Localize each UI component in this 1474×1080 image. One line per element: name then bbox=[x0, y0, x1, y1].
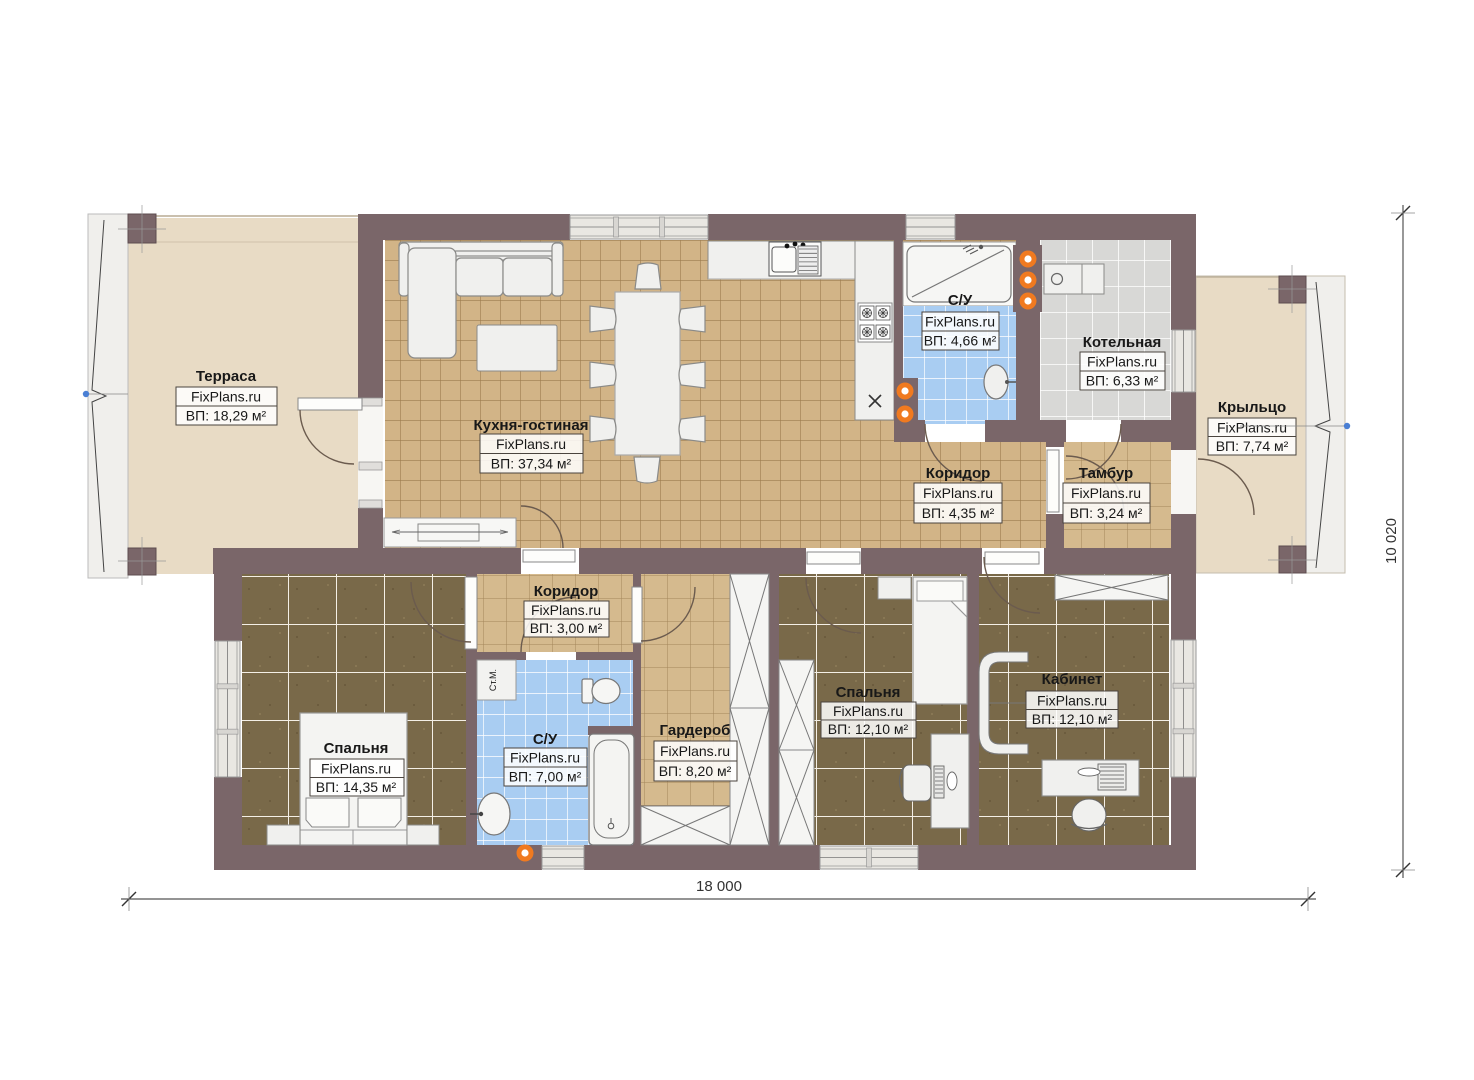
svg-text:ВП: 37,34 м²: ВП: 37,34 м² bbox=[491, 455, 572, 471]
svg-text:ВП: 14,35 м²: ВП: 14,35 м² bbox=[316, 779, 397, 795]
svg-text:Спальня: Спальня bbox=[324, 740, 389, 757]
svg-text:Тамбур: Тамбур bbox=[1079, 465, 1133, 482]
svg-text:FixPlans.ru: FixPlans.ru bbox=[1087, 354, 1157, 370]
svg-text:ВП: 4,66 м²: ВП: 4,66 м² bbox=[924, 333, 997, 349]
svg-text:Спальня: Спальня bbox=[836, 684, 901, 701]
svg-text:Кухня-гостиная: Кухня-гостиная bbox=[474, 417, 589, 434]
svg-text:Коридор: Коридор bbox=[926, 465, 991, 482]
svg-text:Котельная: Котельная bbox=[1083, 334, 1162, 351]
svg-text:FixPlans.ru: FixPlans.ru bbox=[833, 703, 903, 719]
svg-text:ВП: 6,33 м²: ВП: 6,33 м² bbox=[1086, 373, 1159, 389]
svg-text:Кабинет: Кабинет bbox=[1042, 671, 1103, 688]
svg-text:FixPlans.ru: FixPlans.ru bbox=[660, 743, 730, 759]
svg-text:Гардероб: Гардероб bbox=[660, 722, 731, 739]
svg-text:С/У: С/У bbox=[948, 292, 973, 309]
svg-text:ВП: 12,10 м²: ВП: 12,10 м² bbox=[828, 721, 909, 737]
svg-text:С/У: С/У bbox=[533, 731, 558, 748]
svg-text:ВП: 12,10 м²: ВП: 12,10 м² bbox=[1032, 711, 1113, 727]
svg-text:FixPlans.ru: FixPlans.ru bbox=[925, 314, 995, 330]
svg-text:Крыльцо: Крыльцо bbox=[1218, 399, 1286, 416]
svg-text:10 020: 10 020 bbox=[1383, 518, 1400, 564]
svg-text:Терраса: Терраса bbox=[196, 368, 257, 385]
svg-text:18 000: 18 000 bbox=[696, 878, 742, 895]
svg-text:ВП: 3,24 м²: ВП: 3,24 м² bbox=[1070, 505, 1143, 521]
svg-text:FixPlans.ru: FixPlans.ru bbox=[1037, 692, 1107, 708]
svg-text:Коридор: Коридор bbox=[534, 583, 599, 600]
svg-text:ВП: 4,35 м²: ВП: 4,35 м² bbox=[922, 505, 995, 521]
svg-text:FixPlans.ru: FixPlans.ru bbox=[1071, 485, 1141, 501]
svg-text:ВП: 18,29 м²: ВП: 18,29 м² bbox=[186, 408, 267, 424]
svg-text:FixPlans.ru: FixPlans.ru bbox=[510, 750, 580, 766]
svg-text:FixPlans.ru: FixPlans.ru bbox=[496, 436, 566, 452]
svg-text:ВП: 7,74 м²: ВП: 7,74 м² bbox=[1216, 438, 1289, 454]
svg-text:ВП: 8,20 м²: ВП: 8,20 м² bbox=[659, 763, 732, 779]
svg-text:ВП: 3,00 м²: ВП: 3,00 м² bbox=[530, 620, 603, 636]
svg-text:FixPlans.ru: FixPlans.ru bbox=[1217, 419, 1287, 435]
svg-text:FixPlans.ru: FixPlans.ru bbox=[923, 485, 993, 501]
svg-text:FixPlans.ru: FixPlans.ru bbox=[191, 389, 261, 405]
svg-text:FixPlans.ru: FixPlans.ru bbox=[321, 760, 391, 776]
svg-text:FixPlans.ru: FixPlans.ru bbox=[531, 602, 601, 618]
svg-text:Ст.М.: Ст.М. bbox=[488, 669, 498, 691]
svg-text:ВП: 7,00 м²: ВП: 7,00 м² bbox=[509, 769, 582, 785]
